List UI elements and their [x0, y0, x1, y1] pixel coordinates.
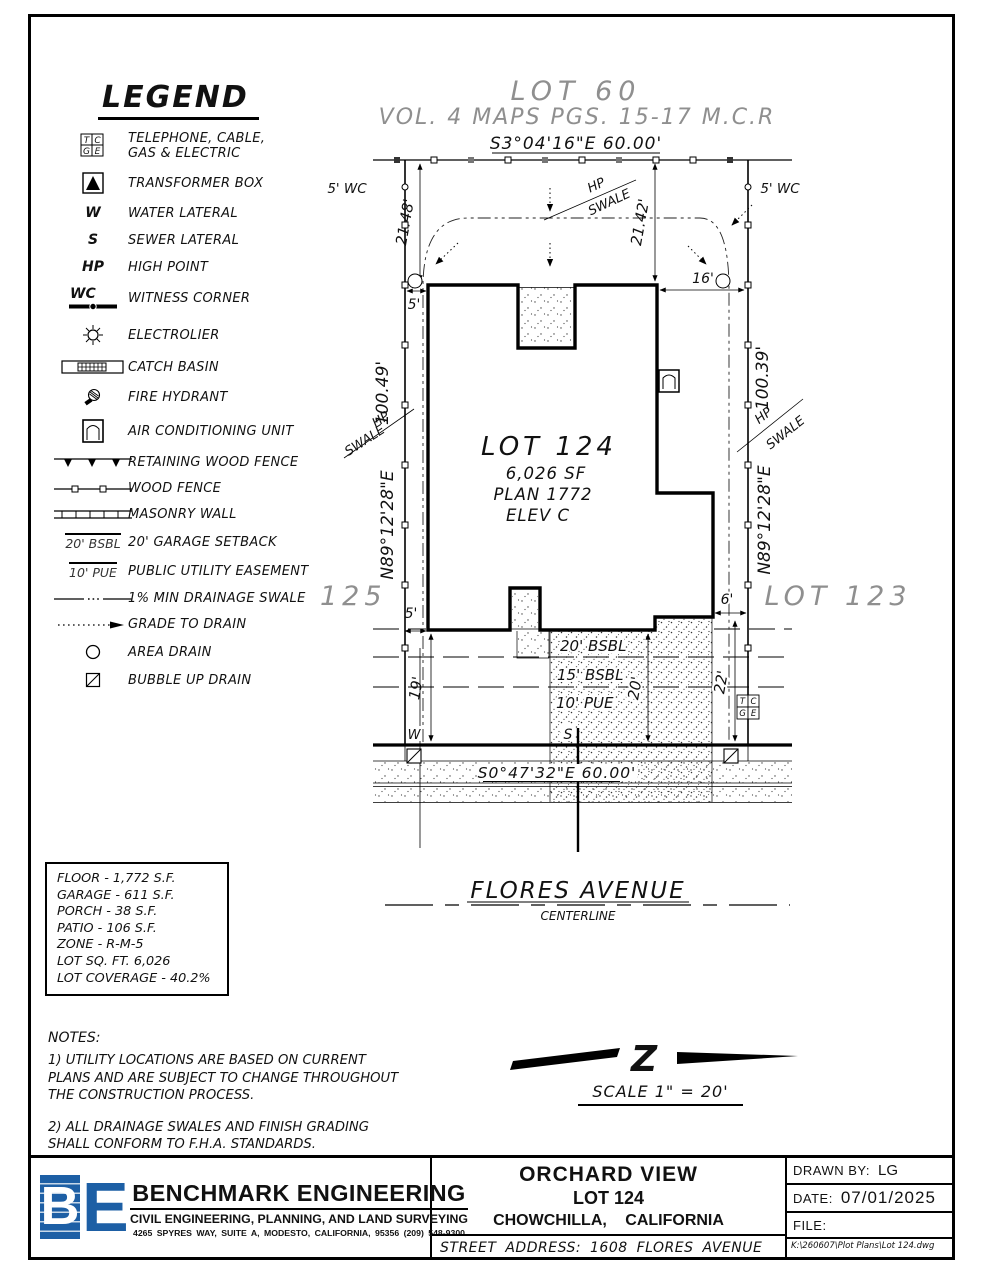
stat-zone: ZONE - R-M-5: [57, 937, 217, 954]
lot-sf-label: 6,026 SF: [506, 464, 586, 483]
project-name: ORCHARD VIEW: [432, 1163, 785, 1187]
lot123-label: LOT 123: [764, 581, 911, 612]
sewer-lateral-label: S: [564, 727, 573, 743]
note-1: 1) UTILITY LOCATIONS ARE BASED ON CURREN…: [48, 1052, 408, 1105]
ac-unit: [659, 370, 679, 392]
scale-label: SCALE 1" = 20': [578, 1082, 743, 1106]
water-lateral-label: W: [408, 728, 422, 743]
wc-right-label: 5' WC: [760, 181, 800, 197]
vol-maps-label: VOL. 4 MAPS PGS. 15-17 M.C.R: [379, 105, 776, 130]
rear-bearing-label: S3°04'16"E 60.00': [490, 134, 662, 154]
electrolier-icon: [58, 322, 128, 348]
legend-label: HIGH POINT: [128, 260, 208, 275]
legend-label: WITNESS CORNER: [128, 291, 250, 306]
dim-5-top: 5': [408, 297, 421, 313]
high-point-symbol: HP: [58, 259, 128, 275]
hp-label-top: HP: [585, 175, 607, 196]
legend-label: AIR CONDITIONING UNIT: [128, 424, 294, 439]
title-block-meta: DRAWN BY: LG DATE: 07/01/2025 FILE: K:\2…: [787, 1158, 955, 1260]
legend-label: AREA DRAIN: [128, 645, 212, 660]
plot-plan-sheet: LEGEND T C G E TELEPHONE, CABLE,GAS & EL…: [0, 0, 988, 1279]
legend-label: 20' GARAGE SETBACK: [128, 535, 277, 550]
legend-label: TELEPHONE, CABLE,GAS & ELECTRIC: [128, 131, 265, 161]
bsbl15-label: 15' BSBL: [557, 666, 623, 684]
swale-line-icon: [58, 595, 128, 603]
wc-left-label: 5' WC: [327, 181, 367, 197]
bubble-up-drain-left: [407, 749, 421, 763]
right-distance-label: 100.39': [753, 346, 773, 410]
svg-text:T: T: [740, 697, 746, 707]
lot-plan-label: PLAN 1772: [493, 485, 592, 504]
legend-label: WATER LATERAL: [128, 206, 238, 221]
stat-porch: PORCH - 38 S.F.: [57, 904, 217, 921]
drawn-by-row: DRAWN BY: LG: [787, 1158, 955, 1185]
tcge-box: T C G E: [737, 695, 759, 719]
legend-item-drainage-swale: 1% MIN DRAINAGE SWALE: [58, 591, 348, 606]
title-block: B E BENCHMARK ENGINEERING CIVIL ENGINEER…: [28, 1155, 955, 1260]
legend-item-retaining-fence: RETAINING WOOD FENCE: [58, 455, 348, 470]
masonry-wall-icon: [58, 508, 128, 521]
drawn-by-value: LG: [878, 1162, 898, 1179]
legend-item-sewer: S SEWER LATERAL: [58, 232, 348, 248]
svg-text:E: E: [751, 709, 757, 719]
legend-item-masonry-wall: MASONRY WALL: [58, 507, 348, 522]
right-bearing-label: N89°12'28"E: [755, 465, 775, 575]
bubble-up-drain-right: [724, 749, 738, 763]
date-row: DATE: 07/01/2025: [787, 1185, 955, 1213]
legend-item-tcge: T C G E TELEPHONE, CABLE,GAS & ELECTRIC: [58, 131, 348, 161]
svg-text:E: E: [95, 147, 101, 157]
legend-item-garage-setback: 20' BSBL 20' GARAGE SETBACK: [58, 533, 348, 551]
grade-to-drain-arrows: [436, 188, 752, 266]
file-path: K:\260607\Plot Plans\Lot 124.dwg: [787, 1239, 955, 1251]
legend-item-grade-to-drain: GRADE TO DRAIN: [58, 617, 348, 632]
legend-item-ac-unit: AIR CONDITIONING UNIT: [58, 418, 348, 444]
dim-5-bot: 5': [405, 606, 418, 622]
tcge-icon: T C G E: [58, 133, 128, 159]
centerline-label: CENTERLINE: [541, 909, 616, 923]
area-summary-box: FLOOR - 1,772 S.F. GARAGE - 611 S.F. POR…: [45, 862, 229, 996]
legend-item-transformer: TRANSFORMER BOX: [58, 172, 348, 194]
stat-floor: FLOOR - 1,772 S.F.: [57, 871, 217, 888]
witness-corner-right: [745, 184, 751, 190]
front-bearing-label: S0°47'32"E 60.00': [478, 764, 637, 782]
patio: [520, 287, 573, 346]
legend-label: TRANSFORMER BOX: [128, 176, 263, 191]
legend-item-electrolier: ELECTROLIER: [58, 322, 348, 348]
legend-item-bubble-drain: BUBBLE UP DRAIN: [58, 672, 348, 688]
witness-corner-left: [402, 184, 408, 190]
lot125-label: LOT 125: [320, 581, 387, 612]
left-distance-label: 100.49': [373, 361, 393, 425]
pue-symbol: 10' PUE: [58, 562, 128, 580]
dim-6: 6': [721, 592, 734, 608]
company-tagline: CIVIL ENGINEERING, PLANNING, AND LAND SU…: [130, 1212, 468, 1226]
note-2: 2) ALL DRAINAGE SWALES AND FINISH GRADIN…: [48, 1119, 408, 1154]
wood-fence-icon: [58, 484, 128, 494]
site-plan-drawing: LOT 60 VOL. 4 MAPS PGS. 15-17 M.C.R S3°0…: [320, 55, 960, 960]
benchmark-logo-icon: B E: [38, 1173, 130, 1245]
legend-item-area-drain: AREA DRAIN: [58, 643, 348, 661]
legend-label: PUBLIC UTILITY EASEMENT: [128, 564, 309, 579]
legend-label: FIRE HYDRANT: [128, 390, 228, 405]
legend-title: LEGEND: [98, 80, 259, 120]
left-bearing-label: N89°12'28"E: [378, 470, 398, 580]
drawn-by-label: DRAWN BY:: [793, 1163, 870, 1178]
legend-label: MASONRY WALL: [128, 507, 237, 522]
bsbl20-label: 20' BSBL: [560, 637, 626, 655]
title-block-project: ORCHARD VIEW LOT 124 CHOWCHILLA, CALIFOR…: [432, 1158, 787, 1260]
porch: [512, 590, 538, 628]
ac-unit-icon: [58, 418, 128, 444]
lot60-label: LOT 60: [511, 76, 642, 107]
dim-16: 16': [692, 271, 714, 287]
north-arrow-scale-bar: Z: [495, 1035, 825, 1080]
lot-elev-label: ELEV C: [506, 506, 570, 525]
file-label: FILE:: [793, 1218, 827, 1233]
transformer-icon: [58, 172, 128, 194]
witness-corner-icon: WC: [58, 286, 128, 311]
legend-label: 1% MIN DRAINAGE SWALE: [128, 591, 306, 606]
stat-garage: GARAGE - 611 S.F.: [57, 888, 217, 905]
dim-2142: 21.42': [627, 197, 653, 246]
sewer-lateral-symbol: S: [58, 232, 128, 248]
scale-z-glyph: Z: [630, 1039, 658, 1080]
title-block-company: B E BENCHMARK ENGINEERING CIVIL ENGINEER…: [28, 1158, 432, 1260]
file-row: FILE:: [787, 1213, 955, 1239]
grade-arrow-icon: [58, 620, 128, 630]
fire-hydrant-icon: [58, 387, 128, 407]
legend-item-water: W WATER LATERAL: [58, 205, 348, 221]
legend-label: ELECTROLIER: [128, 328, 220, 343]
water-lateral-symbol: W: [58, 205, 128, 221]
legend-label: WOOD FENCE: [128, 481, 221, 496]
svg-text:G: G: [739, 709, 746, 719]
legend-item-witness-corner: WC WITNESS CORNER: [58, 286, 348, 311]
legend-label: CATCH BASIN: [128, 360, 219, 375]
legend-label: SEWER LATERAL: [128, 233, 239, 248]
retaining-wood-fence-icon: [58, 456, 128, 469]
catch-basin-icon: [58, 359, 128, 376]
svg-text:C: C: [751, 697, 757, 707]
legend-item-wood-fence: WOOD FENCE: [58, 481, 348, 496]
dim-19: 19': [405, 675, 427, 701]
legend-item-catch-basin: CATCH BASIN: [58, 359, 348, 376]
pue10-label: 10' PUE: [556, 694, 614, 712]
legend-item-highpoint: HP HIGH POINT: [58, 259, 348, 275]
area-drain-icon: [58, 643, 128, 661]
company-name: BENCHMARK ENGINEERING: [130, 1180, 468, 1210]
legend-item-fire-hydrant: FIRE HYDRANT: [58, 387, 348, 407]
legend-label: RETAINING WOOD FENCE: [128, 455, 298, 470]
stat-patio: PATIO - 106 S.F.: [57, 921, 217, 938]
street-address: STREET ADDRESS: 1608 FLORES AVENUE: [432, 1234, 785, 1260]
lot-name-label: LOT 124: [481, 432, 617, 462]
svg-text:C: C: [94, 136, 101, 146]
date-label: DATE:: [793, 1191, 833, 1206]
street-name-label: FLORES AVENUE: [470, 878, 685, 904]
company-address: 4265 SPYRES WAY, SUITE A, MODESTO, CALIF…: [130, 1228, 468, 1238]
area-drain-left: [408, 274, 422, 288]
walkway: [517, 631, 549, 658]
date-value: 07/01/2025: [841, 1188, 936, 1208]
legend-label: BUBBLE UP DRAIN: [128, 673, 251, 688]
legend-label: GRADE TO DRAIN: [128, 617, 246, 632]
swale-label-left: SWALE: [342, 422, 388, 459]
area-drain-right: [716, 274, 730, 288]
bsbl-symbol: 20' BSBL: [58, 533, 128, 551]
project-city: CHOWCHILLA, CALIFORNIA: [432, 1212, 785, 1230]
project-lot: LOT 124: [432, 1188, 785, 1209]
dim-2148: 21.48': [392, 197, 418, 246]
legend: LEGEND T C G E TELEPHONE, CABLE,GAS & EL…: [58, 80, 348, 688]
stat-lot-coverage: LOT COVERAGE - 40.2%: [57, 971, 217, 988]
svg-text:G: G: [83, 147, 90, 157]
stat-lot-sqft: LOT SQ. FT. 6,026: [57, 954, 217, 971]
legend-item-pue: 10' PUE PUBLIC UTILITY EASEMENT: [58, 562, 348, 580]
notes: NOTES: 1) UTILITY LOCATIONS ARE BASED ON…: [48, 1030, 408, 1168]
bubble-drain-icon: [58, 672, 128, 688]
notes-title: NOTES:: [48, 1030, 408, 1046]
